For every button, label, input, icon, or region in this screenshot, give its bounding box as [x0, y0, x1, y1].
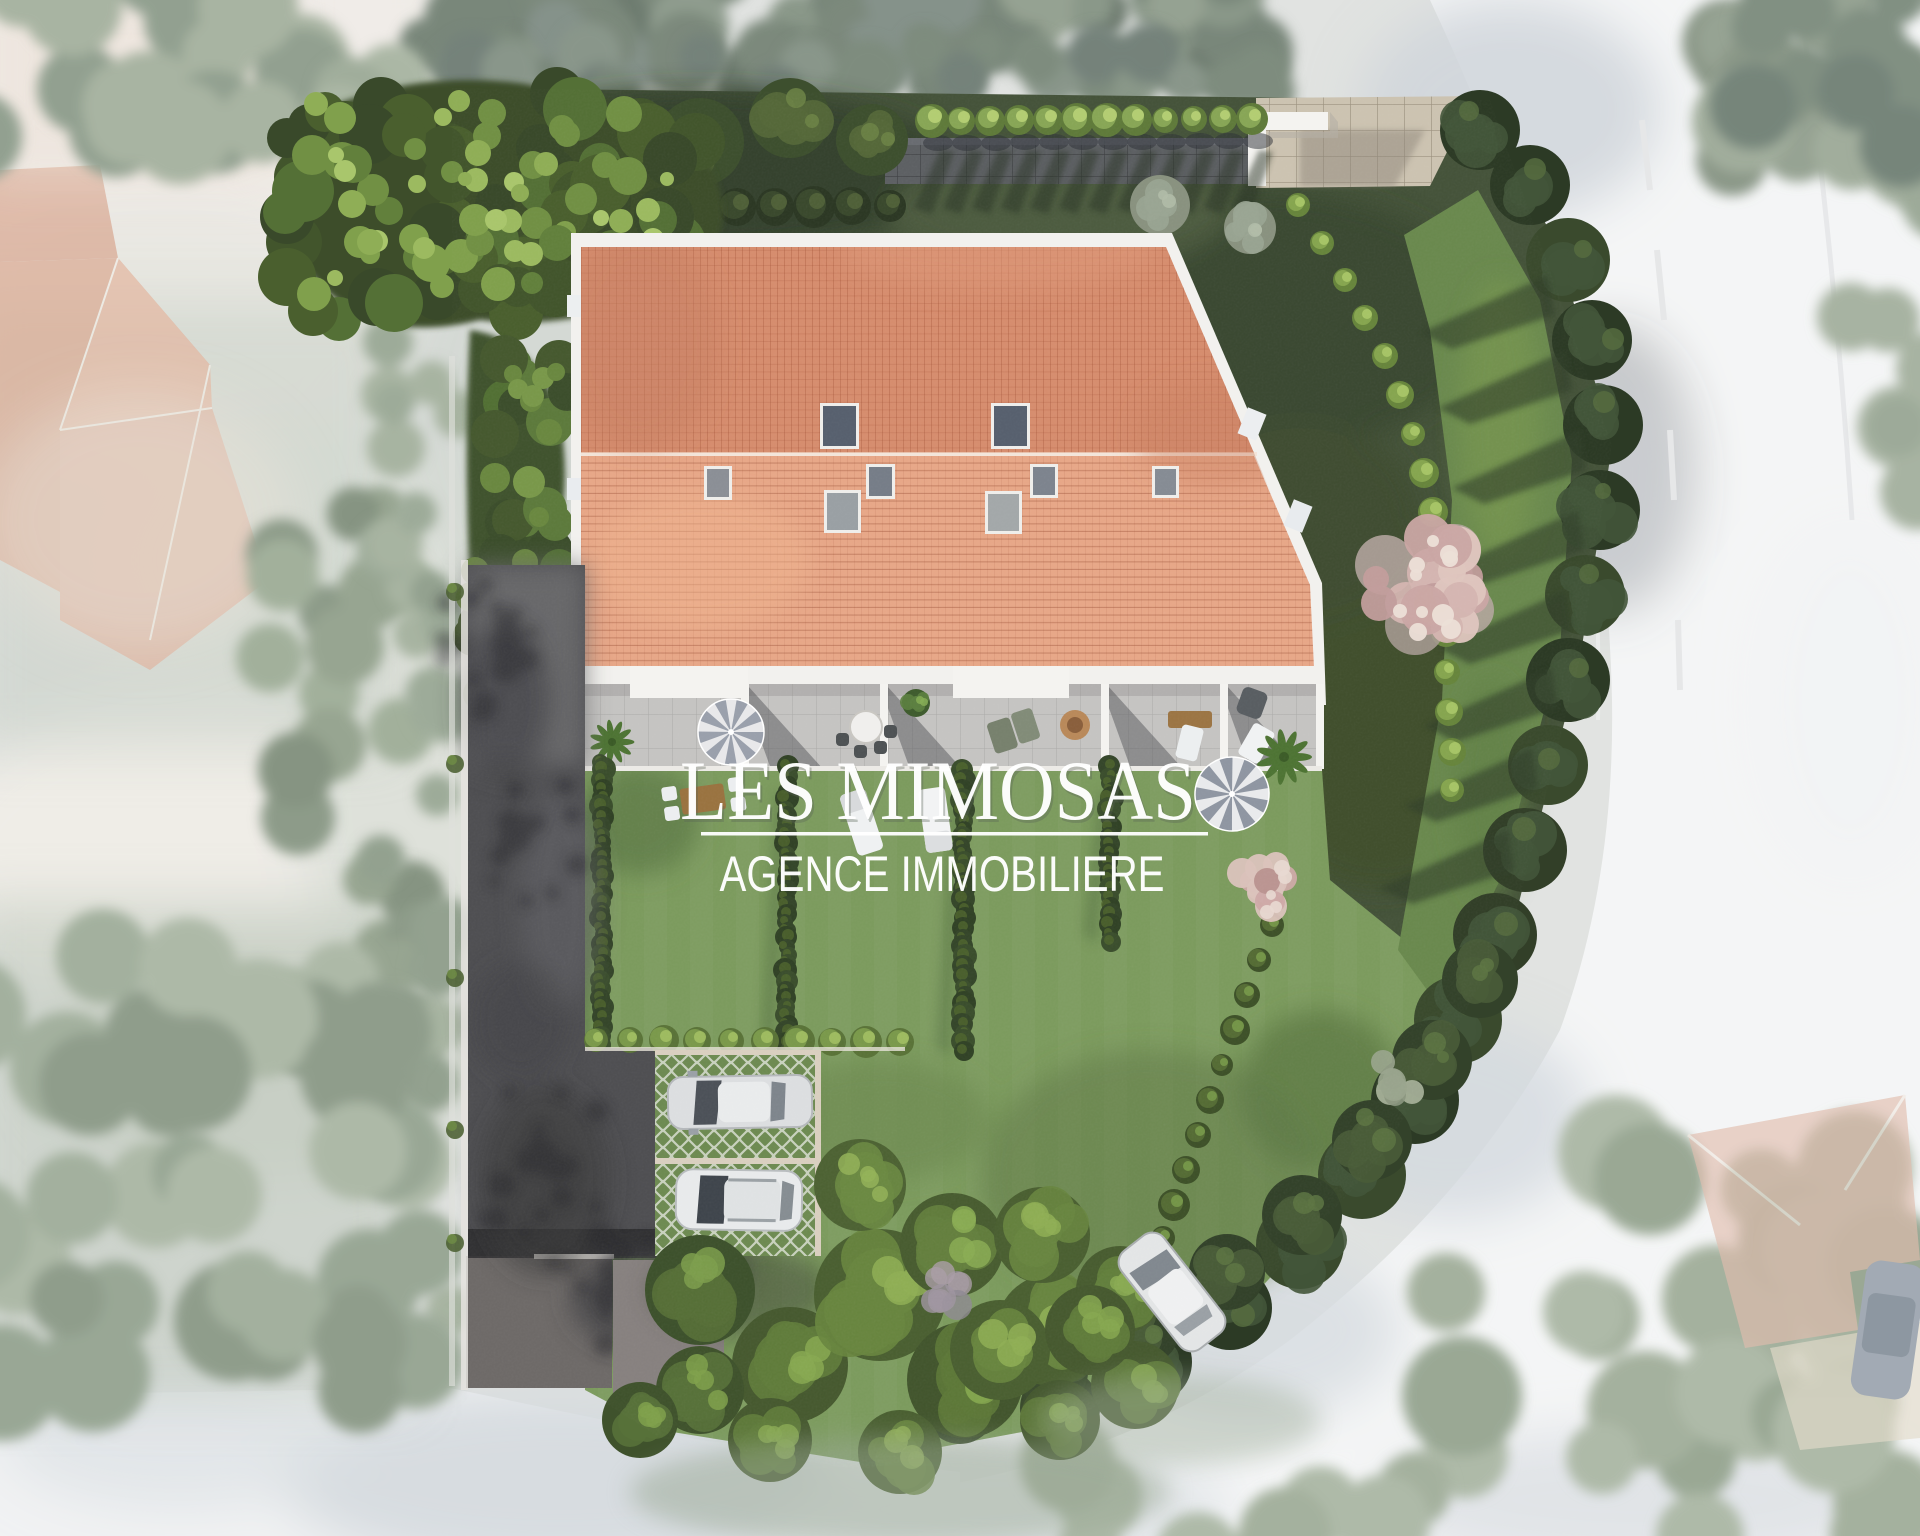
- svg-text:AGENCE IMMOBILIERE: AGENCE IMMOBILIERE: [720, 846, 1165, 902]
- svg-text:LES MIMOSAS: LES MIMOSAS: [680, 744, 1196, 838]
